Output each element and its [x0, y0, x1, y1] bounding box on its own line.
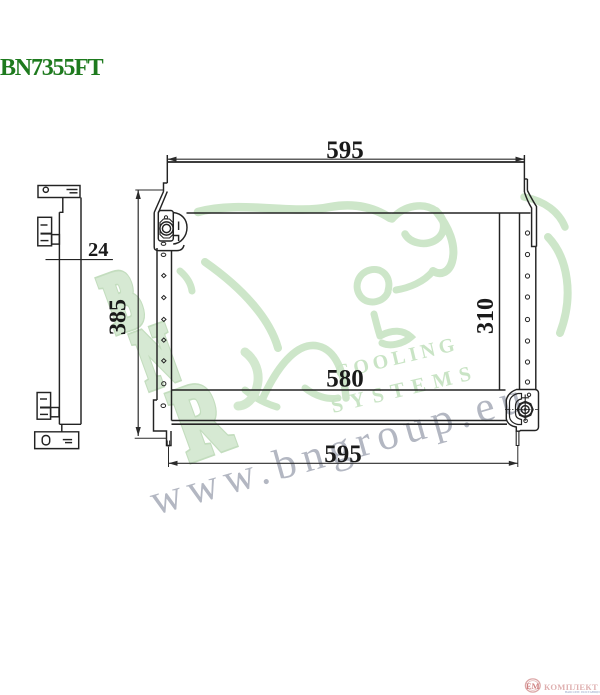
- svg-text:ВАШ ОПТ. ПОСТАВЩИК: ВАШ ОПТ. ПОСТАВЩИК: [565, 690, 600, 694]
- svg-text:24: 24: [88, 239, 109, 261]
- svg-text:595: 595: [324, 441, 362, 468]
- svg-text:595: 595: [326, 137, 364, 164]
- svg-text:580: 580: [326, 366, 364, 393]
- svg-text:385: 385: [106, 299, 132, 335]
- svg-text:ЕМ: ЕМ: [526, 681, 540, 691]
- svg-text:310: 310: [473, 298, 499, 334]
- svg-text:BN7355FT: BN7355FT: [0, 55, 104, 81]
